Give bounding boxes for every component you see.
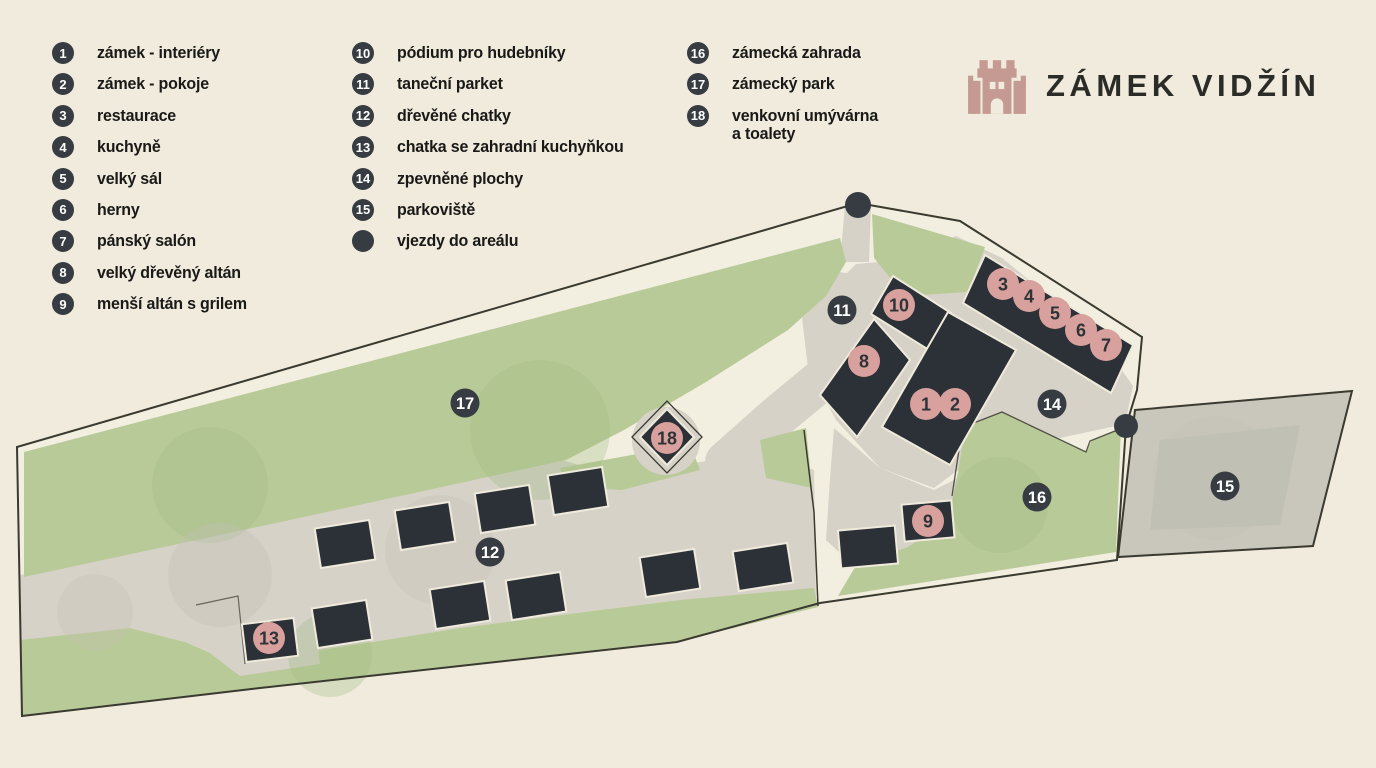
legend-column-1: 1zámek - interiéry2zámek - pokoje3restau… bbox=[52, 40, 256, 323]
legend-item-12: 12dřevěné chatky bbox=[352, 103, 638, 134]
legend-item-1: 1zámek - interiéry bbox=[52, 40, 256, 71]
legend-number-badge: 11 bbox=[352, 73, 374, 95]
svg-text:18: 18 bbox=[657, 429, 677, 449]
svg-text:16: 16 bbox=[1028, 489, 1046, 507]
svg-text:9: 9 bbox=[923, 512, 933, 532]
map-marker-14: 14 bbox=[1038, 390, 1067, 419]
legend-number-badge: 2 bbox=[52, 73, 74, 95]
map-marker-18: 18 bbox=[651, 422, 683, 454]
logo-title: ZÁMEK VIDŽÍN bbox=[1046, 68, 1320, 104]
legend-label: pódium pro hudebníky bbox=[397, 40, 565, 62]
logo: ZÁMEK VIDŽÍN bbox=[966, 58, 1320, 114]
legend-item-17: 17zámecký park bbox=[687, 71, 887, 102]
svg-text:4: 4 bbox=[1024, 287, 1034, 307]
legend-item-3: 3restaurace bbox=[52, 103, 256, 134]
cabin bbox=[640, 549, 701, 597]
legend-number-badge: 13 bbox=[352, 136, 374, 158]
legend-item-18: 18venkovní umývárnaa toalety bbox=[687, 103, 887, 143]
svg-text:15: 15 bbox=[1216, 478, 1234, 496]
legend-label: chatka se zahradní kuchyňkou bbox=[397, 134, 624, 156]
legend-column-3: 16zámecká zahrada17zámecký park18venkovn… bbox=[687, 40, 887, 143]
legend-item-11: 11taneční parket bbox=[352, 71, 638, 102]
legend-label: velký sál bbox=[97, 166, 162, 188]
map-marker-15: 15 bbox=[1211, 472, 1240, 501]
legend-item-8: 8velký dřevěný altán bbox=[52, 260, 256, 291]
cabin bbox=[838, 526, 898, 569]
path-texture bbox=[168, 523, 272, 627]
cabin bbox=[733, 543, 794, 591]
legend-item-entry: vjezdy do areálu bbox=[352, 228, 638, 259]
legend-number-badge: 17 bbox=[687, 73, 709, 95]
legend-label: vjezdy do areálu bbox=[397, 228, 518, 250]
path-texture bbox=[57, 574, 133, 650]
map-marker-10: 10 bbox=[883, 289, 915, 321]
legend-label: herny bbox=[97, 197, 140, 219]
legend-item-16: 16zámecká zahrada bbox=[687, 40, 887, 71]
legend-item-14: 14zpevněné plochy bbox=[352, 166, 638, 197]
legend-number-badge: 3 bbox=[52, 105, 74, 127]
svg-text:17: 17 bbox=[456, 395, 474, 413]
legend-number-badge: 15 bbox=[352, 199, 374, 221]
svg-text:12: 12 bbox=[481, 544, 499, 562]
cabin bbox=[312, 600, 373, 648]
legend-number-badge: 16 bbox=[687, 42, 709, 64]
map-marker-8: 8 bbox=[848, 345, 880, 377]
legend-number-badge: 4 bbox=[52, 136, 74, 158]
cabin bbox=[475, 485, 536, 533]
legend-label: dřevěné chatky bbox=[397, 103, 511, 125]
legend-label: zámecká zahrada bbox=[732, 40, 861, 62]
legend-label: kuchyně bbox=[97, 134, 161, 156]
map-marker-17: 17 bbox=[451, 389, 480, 418]
legend-item-7: 7pánský salón bbox=[52, 228, 256, 259]
svg-text:11: 11 bbox=[833, 302, 850, 320]
legend-label: pánský salón bbox=[97, 228, 196, 250]
map-marker-11: 11 bbox=[828, 296, 857, 325]
svg-text:8: 8 bbox=[859, 352, 869, 372]
legend-number-badge: 12 bbox=[352, 105, 374, 127]
cabin bbox=[315, 520, 376, 568]
svg-text:14: 14 bbox=[1043, 396, 1062, 414]
legend-number-badge: 6 bbox=[52, 199, 74, 221]
svg-text:10: 10 bbox=[889, 296, 909, 316]
legend-label: venkovní umývárnaa toalety bbox=[732, 103, 878, 143]
svg-text:7: 7 bbox=[1101, 336, 1111, 356]
cabin bbox=[548, 467, 609, 515]
legend-number-badge: 1 bbox=[52, 42, 74, 64]
legend-number-badge: 7 bbox=[52, 230, 74, 252]
map-marker-1: 1 bbox=[910, 388, 942, 420]
map-marker-12: 12 bbox=[476, 538, 505, 567]
legend-number-badge: 10 bbox=[352, 42, 374, 64]
legend-label: menší altán s grilem bbox=[97, 291, 247, 313]
legend-number-badge: 18 bbox=[687, 105, 709, 127]
legend-label: parkoviště bbox=[397, 197, 475, 219]
legend-column-2: 10pódium pro hudebníky11taneční parket12… bbox=[352, 40, 638, 260]
map-marker-2: 2 bbox=[939, 388, 971, 420]
legend-item-9: 9menší altán s grilem bbox=[52, 291, 256, 322]
legend-label: zámek - interiéry bbox=[97, 40, 220, 62]
cabin bbox=[395, 502, 456, 550]
legend-label: zámecký park bbox=[732, 71, 835, 93]
svg-text:1: 1 bbox=[921, 395, 931, 415]
legend-item-13: 13chatka se zahradní kuchyňkou bbox=[352, 134, 638, 165]
castle-icon bbox=[966, 58, 1028, 114]
cabin bbox=[506, 572, 567, 620]
legend-label: velký dřevěný altán bbox=[97, 260, 241, 282]
legend-item-6: 6herny bbox=[52, 197, 256, 228]
svg-text:13: 13 bbox=[259, 629, 279, 649]
svg-text:3: 3 bbox=[998, 275, 1008, 295]
legend-number-badge: 5 bbox=[52, 168, 74, 190]
legend-number-badge: 8 bbox=[52, 262, 74, 284]
legend-item-5: 5velký sál bbox=[52, 166, 256, 197]
estate-map-page: 123456789101318111214151617 1zámek - int… bbox=[0, 0, 1376, 768]
legend-label: zámek - pokoje bbox=[97, 71, 209, 93]
legend-item-15: 15parkoviště bbox=[352, 197, 638, 228]
legend-number-badge: 14 bbox=[352, 168, 374, 190]
entry-point-dot-2 bbox=[1114, 414, 1138, 438]
map-marker-7: 7 bbox=[1090, 329, 1122, 361]
legend-number-badge: 9 bbox=[52, 293, 74, 315]
entry-point-dot-1 bbox=[845, 192, 871, 218]
svg-text:2: 2 bbox=[950, 395, 960, 415]
svg-text:6: 6 bbox=[1076, 321, 1086, 341]
cabin bbox=[430, 581, 491, 629]
map-marker-16: 16 bbox=[1023, 483, 1052, 512]
legend-label-line2: a toalety bbox=[732, 125, 878, 143]
legend-item-10: 10pódium pro hudebníky bbox=[352, 40, 638, 71]
legend-item-4: 4kuchyně bbox=[52, 134, 256, 165]
legend-label: taneční parket bbox=[397, 71, 503, 93]
legend-label: zpevněné plochy bbox=[397, 166, 523, 188]
entry-dot-icon bbox=[352, 230, 374, 252]
map-marker-13: 13 bbox=[253, 622, 285, 654]
map-marker-9: 9 bbox=[912, 505, 944, 537]
legend-item-2: 2zámek - pokoje bbox=[52, 71, 256, 102]
legend-label: restaurace bbox=[97, 103, 176, 125]
svg-text:5: 5 bbox=[1050, 304, 1060, 324]
